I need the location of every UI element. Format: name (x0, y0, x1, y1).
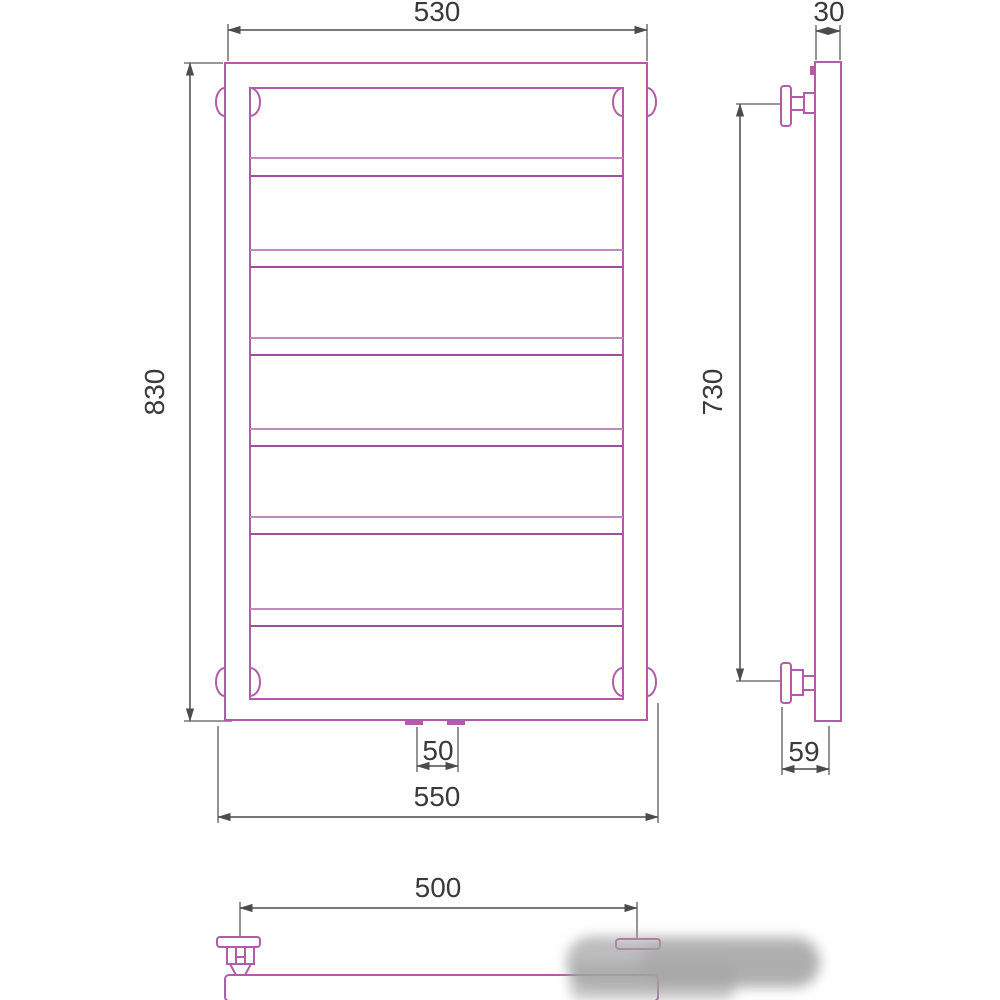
air-vent-detail (810, 66, 816, 75)
corner-arc (613, 88, 623, 116)
corner-arc (613, 668, 623, 696)
dim-side-wall-offset-label: 59 (788, 736, 819, 767)
bracket-taper (230, 964, 251, 975)
bracket-wall-plate (781, 663, 791, 703)
side-top-bracket (781, 86, 815, 126)
corner-arc (647, 88, 656, 116)
corner-arc (250, 668, 260, 696)
dimension-side-wall-offset: 59 (782, 707, 829, 775)
connection-stub-left (405, 720, 423, 725)
dimension-bottom-bracket-spacing: 500 (240, 872, 637, 940)
dim-front-height-label: 830 (139, 369, 170, 416)
dimension-side-depth: 30 (813, 0, 844, 60)
front-rungs (250, 158, 623, 626)
towel-rail-drawing: 530 830 550 50 730 30 59 (0, 0, 1000, 1000)
dim-front-overall-width-label: 550 (414, 781, 461, 812)
technical-drawing-canvas: 530 830 550 50 730 30 59 (0, 0, 1000, 1000)
bracket-collar (804, 93, 815, 113)
bottom-left-bracket (217, 937, 260, 975)
front-frame-outer (225, 63, 647, 720)
corner-arc (647, 668, 656, 696)
corner-arc (250, 88, 260, 116)
dim-front-connection-spacing-label: 50 (422, 735, 453, 766)
bracket-notch (236, 947, 245, 957)
dimension-side-mounting-height: 730 (697, 104, 782, 681)
bracket-stem (227, 947, 236, 964)
side-tube (815, 62, 841, 721)
corner-arc (216, 88, 225, 116)
watermark-blob (566, 936, 821, 1000)
dimension-front-top-width: 530 (228, 0, 647, 61)
corner-arc (216, 668, 225, 696)
bracket-stem (245, 947, 254, 964)
side-view (781, 62, 841, 721)
front-view (216, 63, 656, 725)
bracket-wall-plate (781, 86, 791, 126)
bracket-nut (791, 670, 803, 695)
dim-front-top-width-label: 530 (414, 0, 461, 27)
bracket-stem (803, 676, 815, 690)
bracket-wall-plate (217, 937, 260, 947)
dim-bottom-bracket-spacing-label: 500 (415, 872, 462, 903)
front-corner-arcs (216, 88, 656, 696)
side-bottom-bracket (781, 663, 815, 703)
connection-stub-right (447, 720, 465, 725)
front-frame-inner (250, 88, 623, 699)
dimension-front-connection-spacing: 50 (417, 727, 458, 772)
watermark-shape (570, 962, 735, 1000)
dimension-front-height: 830 (139, 63, 232, 721)
dim-side-depth-label: 30 (813, 0, 844, 27)
dim-side-mounting-height-label: 730 (697, 369, 728, 416)
